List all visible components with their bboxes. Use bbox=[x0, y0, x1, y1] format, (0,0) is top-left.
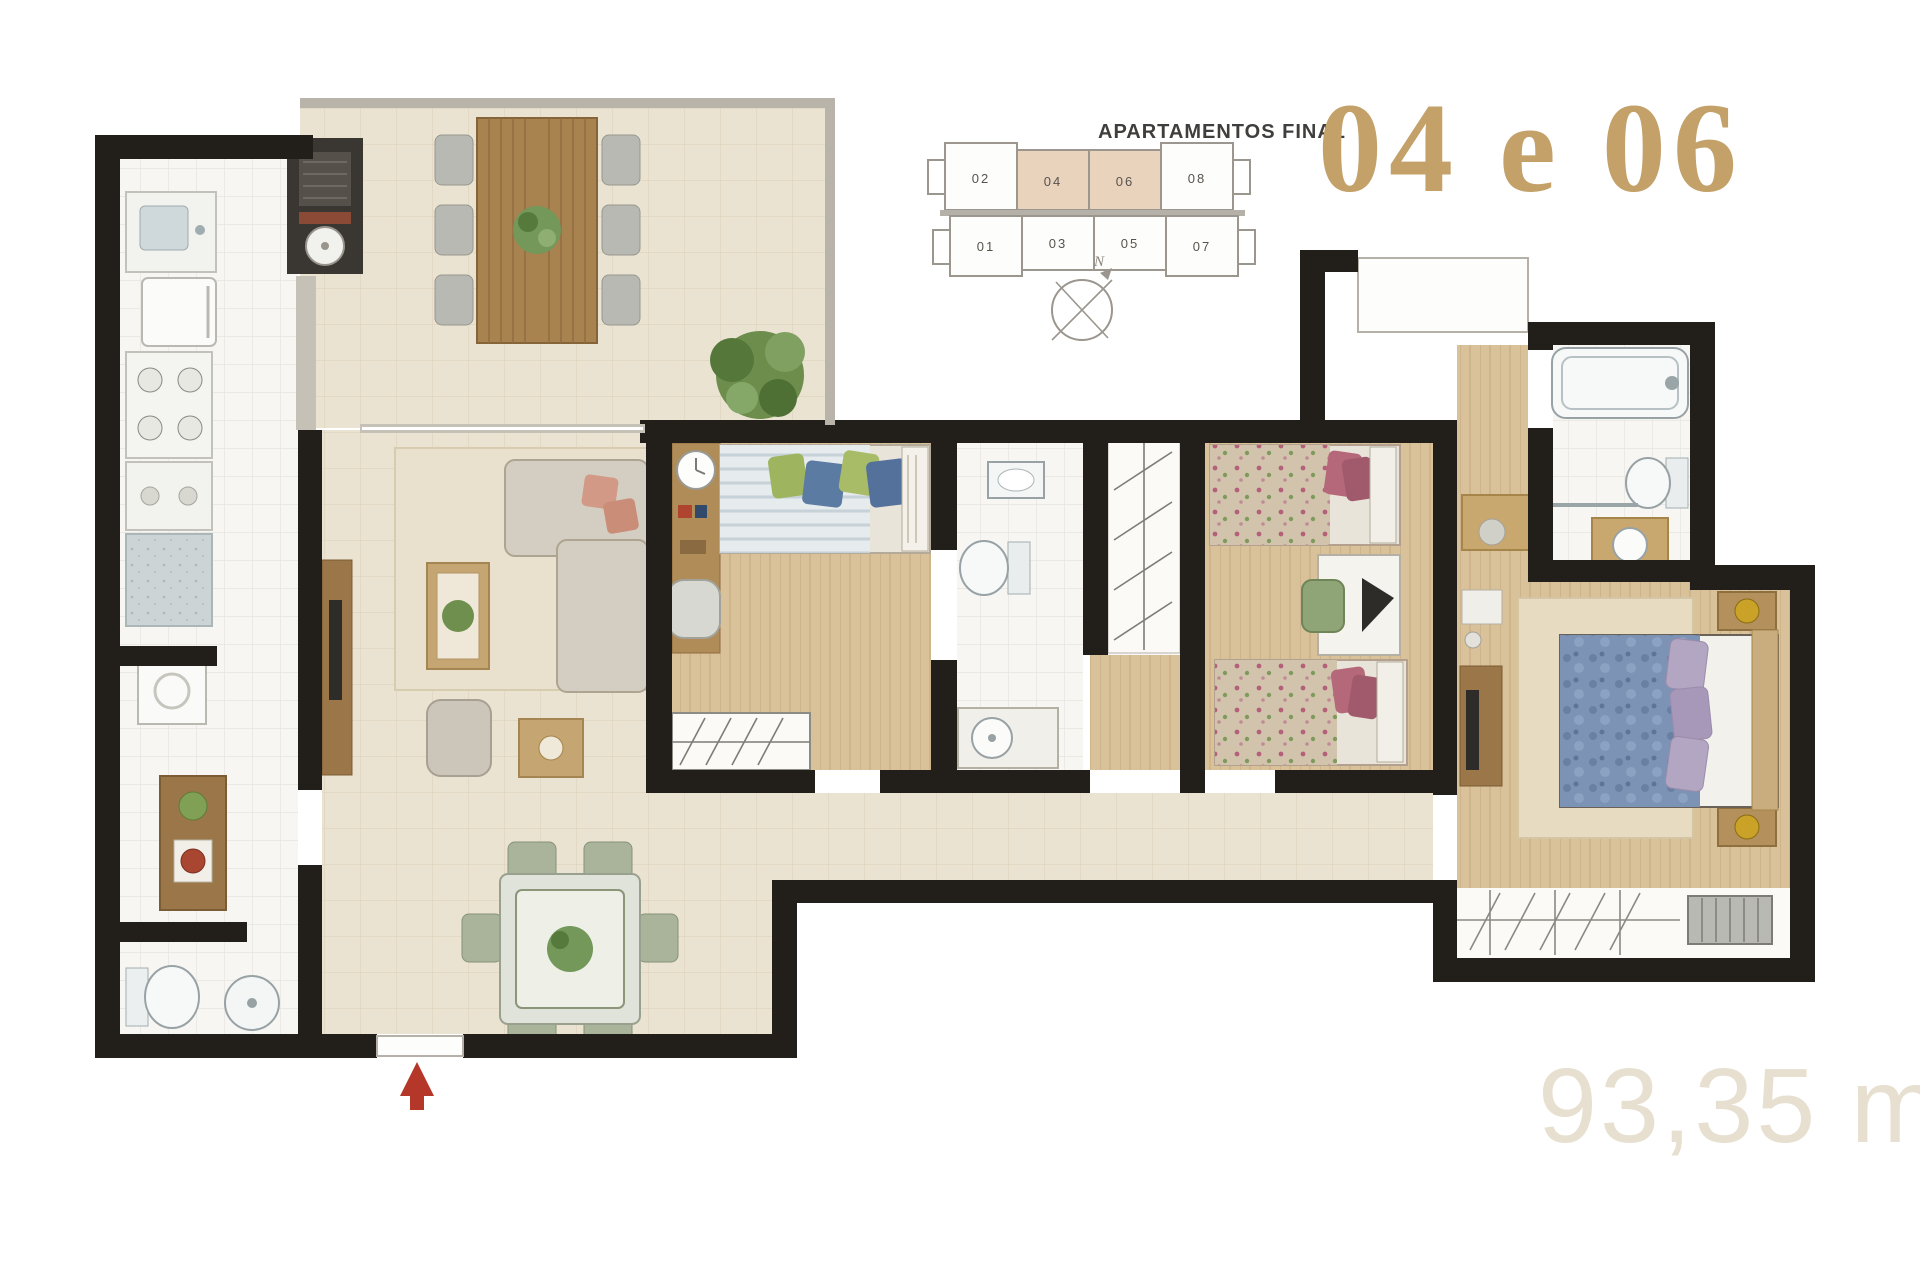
dining-centerpiece bbox=[547, 926, 593, 972]
dining-chair bbox=[462, 914, 502, 962]
lavender-pillow bbox=[1665, 736, 1710, 793]
kitchen-sink bbox=[140, 206, 188, 250]
sink-drain bbox=[247, 998, 257, 1008]
suite-tv bbox=[1466, 690, 1479, 770]
keyplan-step bbox=[1238, 230, 1255, 264]
wall-shaft-west bbox=[1300, 250, 1325, 443]
keyplan-label-05: 05 bbox=[1121, 236, 1139, 251]
table-plant-leaf bbox=[518, 212, 538, 232]
wall-laundry-lavatory bbox=[107, 922, 247, 942]
wall-south-rooms-b bbox=[880, 770, 1090, 793]
wall-bedroom2-east bbox=[1433, 420, 1457, 795]
desk-item bbox=[680, 540, 706, 554]
kitchen-counter bbox=[126, 462, 212, 530]
master-headboard bbox=[1752, 630, 1778, 810]
entry-arrow-stem bbox=[410, 1094, 424, 1110]
table-plant-leaf bbox=[538, 229, 556, 247]
wall-masterbath-west-b bbox=[1528, 428, 1553, 582]
toilet-bowl bbox=[960, 541, 1008, 595]
desk-chair bbox=[668, 580, 720, 638]
wall-masterbath-east bbox=[1690, 322, 1715, 590]
compass-north-label: N bbox=[1093, 254, 1105, 270]
toilet-bowl bbox=[1626, 458, 1670, 508]
salmon-pillow bbox=[602, 497, 639, 534]
keyplan-label-08: 08 bbox=[1188, 171, 1206, 186]
wall-bedroom2-west bbox=[1180, 425, 1205, 793]
terrace-chair bbox=[602, 135, 640, 185]
keyplan-label-04: 04 bbox=[1044, 174, 1062, 189]
wall-bedroom1-west bbox=[646, 420, 672, 793]
wall-masterbath-south bbox=[1528, 560, 1690, 582]
suite-drawer bbox=[1462, 590, 1502, 624]
bed-a-cover bbox=[1210, 445, 1330, 545]
entry-arrow bbox=[400, 1062, 434, 1110]
table-plant bbox=[513, 206, 561, 254]
laundry-bowl bbox=[179, 792, 207, 820]
coffee-table-plant bbox=[442, 600, 474, 632]
closet-shelving bbox=[1108, 440, 1180, 653]
wall-lavatory-east bbox=[298, 865, 322, 1035]
gold-lamp bbox=[1735, 599, 1759, 623]
terrace-chair bbox=[435, 205, 473, 255]
desk-book bbox=[695, 505, 707, 518]
granite-counter bbox=[126, 534, 212, 626]
lavender-pillow bbox=[1669, 686, 1712, 742]
washing-machine bbox=[138, 658, 206, 724]
wall-rooms-north bbox=[640, 420, 1457, 443]
keyplan-label-07: 07 bbox=[1193, 239, 1211, 254]
kitchen-terrace-door bbox=[296, 276, 316, 430]
dining-centerpiece-leaf bbox=[551, 931, 569, 949]
suite-vanity-sink bbox=[1613, 528, 1647, 562]
page-title: APARTAMENTOS FINAL bbox=[1098, 121, 1308, 144]
burner bbox=[138, 416, 162, 440]
keyplan-step bbox=[928, 160, 945, 194]
burner bbox=[178, 416, 202, 440]
suite-mirror bbox=[1465, 632, 1481, 648]
wall-suite-east bbox=[1790, 565, 1815, 982]
wall-masterbath-west-a bbox=[1528, 322, 1553, 350]
wall-kitchen-top bbox=[95, 135, 313, 159]
barbecue-drain bbox=[321, 242, 329, 250]
suite-desk-chair bbox=[1479, 519, 1505, 545]
wall-south-rooms-a bbox=[646, 770, 815, 793]
bedroom2-chair bbox=[1302, 580, 1344, 632]
keyplan-label-03: 03 bbox=[1049, 236, 1067, 251]
bathtub-faucet bbox=[1665, 376, 1679, 390]
counter-basin bbox=[179, 487, 197, 505]
keyplan-step bbox=[1233, 160, 1250, 194]
keyplan-label-06: 06 bbox=[1116, 174, 1134, 189]
wall-balcony-south bbox=[1433, 958, 1815, 982]
armchair bbox=[427, 700, 491, 776]
kitchen-faucet bbox=[195, 225, 205, 235]
toilet-bowl bbox=[145, 966, 199, 1028]
bed-a-headboard bbox=[1370, 447, 1396, 543]
wall-hall-south bbox=[772, 880, 1433, 903]
gold-lamp bbox=[1735, 815, 1759, 839]
wall-bottom-left bbox=[95, 1034, 377, 1058]
wall-left bbox=[95, 135, 120, 1058]
wall-south-rooms-c bbox=[1275, 770, 1457, 793]
terrace-chair bbox=[602, 205, 640, 255]
dining-chair bbox=[638, 914, 678, 962]
wall-bedroom1-east-b bbox=[931, 660, 957, 793]
wall-sink-bowl bbox=[998, 469, 1034, 491]
barbecue-shelf bbox=[299, 212, 351, 224]
fridge bbox=[142, 278, 216, 346]
burner bbox=[138, 368, 162, 392]
stove bbox=[126, 352, 212, 458]
desk-book bbox=[678, 505, 692, 518]
counter-basin bbox=[141, 487, 159, 505]
area-value: 93,35 m² bbox=[1538, 1046, 1920, 1167]
keyplan-step bbox=[933, 230, 950, 264]
toilet-tank bbox=[1008, 542, 1030, 594]
entry-threshold bbox=[377, 1036, 463, 1056]
floorplan-page: 02 04 06 08 01 03 05 07 N APARTAMENTOS F… bbox=[0, 0, 1920, 1280]
wall-step-vertical bbox=[772, 880, 797, 1058]
sofa-arm bbox=[557, 540, 648, 692]
living-glass-line bbox=[362, 427, 643, 430]
entry-arrow-head bbox=[400, 1062, 434, 1096]
table-lamp bbox=[539, 736, 563, 760]
bed-b-headboard bbox=[1377, 662, 1403, 762]
lavender-pillow bbox=[1665, 638, 1709, 692]
terrace-chair bbox=[435, 275, 473, 325]
burner bbox=[178, 368, 202, 392]
terrace-rail-right bbox=[825, 98, 835, 425]
bed-b-cover bbox=[1215, 660, 1337, 765]
keyplan-label-02: 02 bbox=[972, 171, 990, 186]
shaft bbox=[1358, 258, 1528, 332]
keyplan-label-01: 01 bbox=[977, 239, 995, 254]
terrace-chair bbox=[435, 135, 473, 185]
terrace-chair bbox=[602, 275, 640, 325]
wall-bedroom1-east-a bbox=[931, 437, 957, 550]
laundry-basin bbox=[181, 849, 205, 873]
wall-masterbath-north bbox=[1528, 322, 1715, 345]
green-pillow bbox=[767, 453, 808, 500]
terrace-rail-top bbox=[300, 98, 835, 108]
wall-living-west bbox=[298, 430, 322, 790]
key-plan: 02 04 06 08 01 03 05 07 bbox=[928, 143, 1255, 276]
wall-bathroom-east bbox=[1083, 440, 1108, 655]
tv-screen bbox=[329, 600, 342, 700]
vanity-drain bbox=[988, 734, 996, 742]
wall-kitchen-laundry bbox=[107, 646, 217, 666]
unit-numbers: 04 e 06 bbox=[1318, 84, 1744, 212]
wall-bottom-center bbox=[463, 1034, 797, 1058]
hall-floor bbox=[646, 793, 1433, 880]
wall-shaft-top bbox=[1300, 250, 1358, 272]
